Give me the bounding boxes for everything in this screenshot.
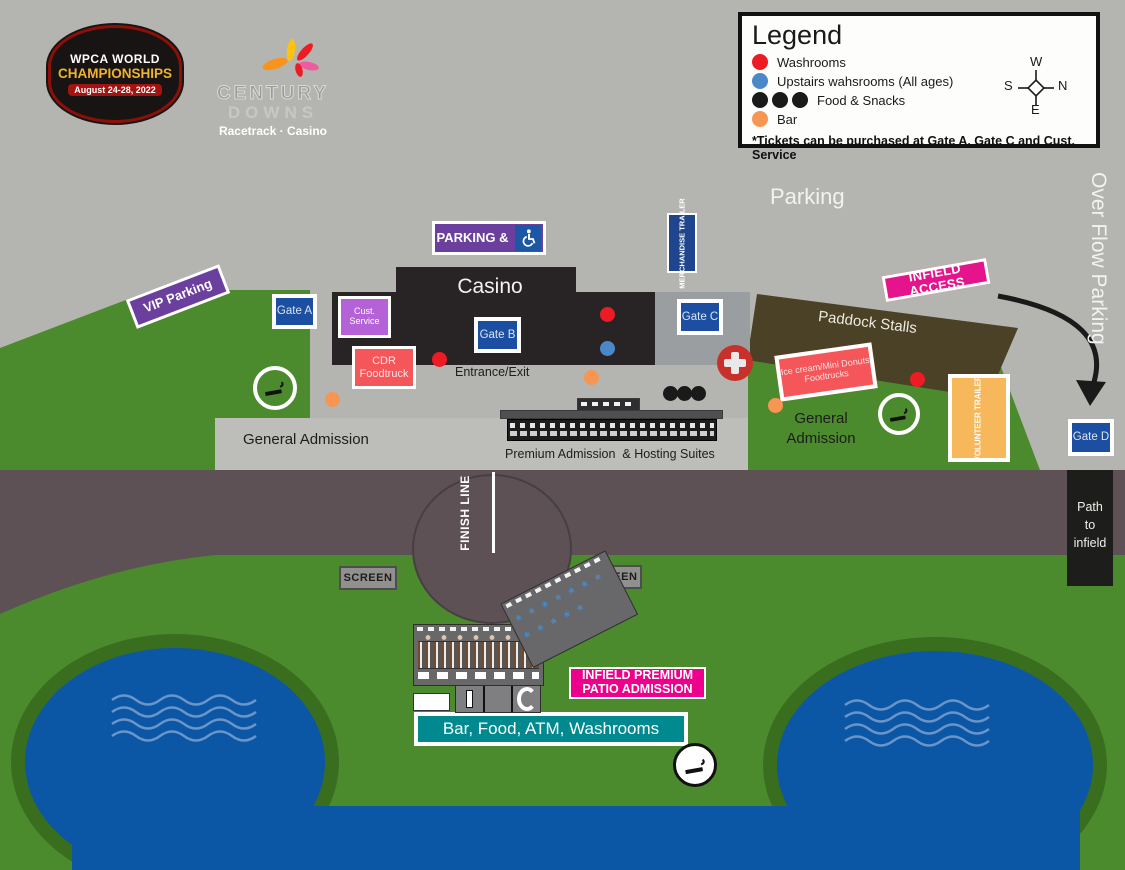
ga-right-line2: Admission: [775, 429, 867, 449]
legend-item-label: Bar: [777, 112, 797, 127]
cust-service-line2: Service: [349, 317, 379, 327]
volunteer-trailer-sign: VOLUNTEER TRAILER: [948, 374, 1010, 462]
legend-title: Legend: [752, 20, 1086, 51]
cdr-foodtruck-sign: CDR Foodtruck: [352, 346, 416, 389]
entrance-exit-label: Entrance/Exit: [455, 365, 529, 379]
infield-premium-line1: INFIELD PREMIUM: [582, 669, 693, 683]
infield-premium-line2: PATIO ADMISSION: [582, 683, 693, 697]
cust-service-sign: Cust. Service: [338, 296, 391, 338]
arrow-head: [1076, 380, 1106, 406]
upstairs-washrooms-dot-icon: [752, 73, 768, 89]
path-line2: to: [1067, 516, 1113, 534]
century-word: CENTURY: [208, 83, 338, 105]
food-dots-icon: [752, 92, 808, 108]
grandstand-roof: [500, 410, 723, 419]
bar-food-atm-sign: Bar, Food, ATM, Washrooms: [414, 712, 688, 746]
century-burst-icon: [247, 36, 327, 78]
merchandise-trailer-label: MERCHANDISE TRAILER: [678, 198, 687, 288]
parking-label: Parking: [770, 184, 845, 210]
screen-left-sign: SCREEN: [339, 566, 397, 590]
infield-small-building: [413, 693, 450, 711]
accessible-parking-sign: PARKING &: [432, 221, 546, 255]
wpca-logo: WPCA WORLD CHAMPIONSHIPS August 24-28, 2…: [48, 25, 182, 123]
compass-icon: W S N E: [1004, 56, 1068, 120]
cdr-line2: Foodtruck: [360, 368, 409, 380]
wheelchair-icon: [515, 225, 541, 251]
smoking-area-icon: [673, 743, 717, 787]
infield-service-building: [455, 685, 541, 713]
general-admission-left-label: General Admission: [243, 431, 369, 448]
merchandise-trailer-sign: MERCHANDISE TRAILER: [667, 213, 697, 273]
overflow-parking-label: Over Flow Parking: [1086, 172, 1110, 345]
finish-line-label-wrap: FINISH LINE: [440, 470, 490, 555]
volunteer-trailer-label: VOLUNTEER TRAILER: [975, 375, 984, 461]
compass-rose: [1004, 56, 1068, 120]
bar-dot: [768, 398, 783, 413]
washrooms-dot-icon: [752, 54, 768, 70]
food-dot: [691, 386, 706, 401]
smoking-area-icon: [253, 366, 297, 410]
premium-admission-label: Premium Admission & Hosting Suites: [505, 447, 715, 461]
general-admission-right-label: General Admission: [775, 409, 867, 450]
wpca-logo-line2: CHAMPIONSHIPS: [58, 66, 172, 81]
century-tagline: Racetrack · Casino: [208, 124, 338, 138]
path-line3: infield: [1067, 534, 1113, 552]
accessible-parking-label: PARKING &: [437, 231, 509, 245]
gate-c-sign: Gate C: [677, 299, 723, 335]
gate-d-sign: Gate D: [1068, 419, 1114, 456]
washroom-dot: [600, 307, 615, 322]
legend-item-label: Food & Snacks: [817, 93, 905, 108]
bar-dot-icon: [752, 111, 768, 127]
gate-b-sign: Gate B: [474, 317, 521, 353]
washroom-dot: [910, 372, 925, 387]
grandstand-seats: [507, 419, 717, 441]
century-downs-logo: CENTURY DOWNS Racetrack · Casino: [208, 36, 338, 122]
smoking-area-icon: [878, 393, 920, 435]
upstairs-washroom-dot: [600, 341, 615, 356]
gate-a-sign: Gate A: [272, 294, 317, 329]
infield-access-arrow: [998, 296, 1097, 388]
legend: Legend Washrooms Upstairs wahsrooms (All…: [738, 12, 1100, 148]
venue-map: WPCA WORLD CHAMPIONSHIPS August 24-28, 2…: [0, 0, 1125, 870]
legend-item-label: Upstairs wahsrooms (All ages): [777, 74, 953, 89]
washroom-dot: [432, 352, 447, 367]
infield-premium-sign: INFIELD PREMIUM PATIO ADMISSION: [569, 667, 706, 699]
ga-right-line1: General: [775, 409, 867, 429]
downs-word: DOWNS: [208, 103, 338, 123]
cdr-line1: CDR: [360, 355, 409, 367]
first-aid-icon: [717, 345, 753, 381]
finish-line-label: FINISH LINE: [458, 475, 472, 551]
wpca-logo-dates: August 24-28, 2022: [68, 84, 162, 96]
finish-line-mark: [492, 472, 495, 553]
bar-dot: [325, 392, 340, 407]
path-to-infield-sign: Path to infield: [1067, 470, 1113, 586]
casino-label: Casino: [430, 275, 550, 299]
legend-footnote: *Tickets can be purchased at Gate A, Gat…: [752, 134, 1086, 162]
bar-dot: [584, 370, 599, 385]
legend-item-label: Washrooms: [777, 55, 846, 70]
path-line1: Path: [1067, 498, 1113, 516]
pond-bottom: [72, 806, 1080, 870]
food-dot: [677, 386, 692, 401]
food-dot: [663, 386, 678, 401]
wpca-logo-line1: WPCA WORLD: [70, 52, 160, 66]
